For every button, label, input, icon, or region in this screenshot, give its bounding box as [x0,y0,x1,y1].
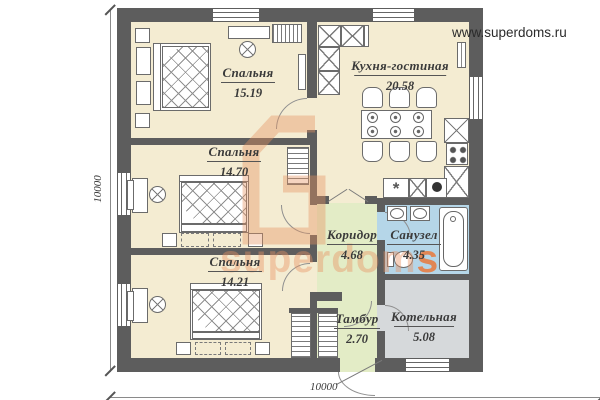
place-setting [367,126,378,137]
boiler-window [405,359,450,371]
room-label-bedroom-2: Спальня 14.70 [207,145,261,179]
dimension-line-left [110,10,111,372]
bed3-rug [195,342,221,355]
room-area: 15.19 [234,87,262,100]
room-area: 4.35 [403,249,425,262]
bed1-dresser [228,26,270,39]
room-name: Спальня [208,145,259,158]
room-label-vestibule: Тамбур 2.70 [334,312,380,346]
kitchen-cabinet [409,178,426,198]
room-name: Кухня-гостиная [351,59,449,72]
room-name: Санузел [390,228,437,241]
kitchen-cabinet [444,118,469,143]
room-name: Спальня [209,255,260,268]
site-url: www.superdoms.ru [452,25,567,40]
place-setting [390,126,401,137]
room-area: 2.70 [346,333,368,346]
bed1-nightstand-top [136,47,151,75]
bed2-nightstand [162,233,177,247]
bed1-corner-table [135,28,150,43]
bed1-wardrobe-icon [272,24,302,43]
room-area: 14.21 [221,276,249,289]
room-area: 20.58 [386,80,414,93]
bed2-door-gap [310,205,317,235]
wall-kitchen-bathroom [377,198,469,205]
radiator-icon [457,42,466,68]
chair-icon [416,141,437,162]
chair-icon [362,141,383,162]
place-setting [413,112,424,123]
bed3-rug [225,342,251,355]
sofa-seat-3 [318,47,340,71]
wall-right [469,8,483,372]
sofa-icon [318,25,341,47]
vestibule-door-gap [342,292,377,301]
room-name: Котельная [391,310,457,323]
radiator-icon [127,291,134,321]
sofa-seat-2 [341,25,364,47]
bed3-dresser [132,288,148,323]
ceiling-fan-icon [149,186,166,203]
room-name: Спальня [222,66,273,79]
bed3-closet-icon [291,313,311,358]
bed2-foot-bench [181,224,247,232]
bathroom-door-gap [377,212,385,240]
stove-icon [446,143,468,165]
room-area: 4.68 [341,249,363,262]
sink-basin [413,208,427,219]
bed1-headboard [154,44,161,110]
floor-plan: * Спальня 15.19 Кухня-гостиная [0,0,600,400]
dimension-bottom-value: 10000 [310,381,338,393]
room-label-corridor: Коридор 4.68 [327,228,377,262]
ceiling-fan-icon [149,296,166,313]
kitchen-cabinet [444,166,469,198]
bed2-rug [181,233,209,247]
entrance-door-arc [338,372,375,396]
bed2-dresser [132,178,148,213]
place-setting [390,112,401,123]
kitchen-right-window [470,76,482,120]
bed3-door-gap [310,262,317,292]
room-label-bedroom-3: Спальня 14.21 [208,255,262,289]
bed1-tv-stand [298,54,306,90]
sofa-seat-4 [318,71,340,95]
bed1-door-gap [307,98,317,130]
wall-bathroom-boiler [385,274,469,280]
bed1-nightstand-bottom [136,81,151,105]
room-label-bedroom-1: Спальня 15.19 [221,66,275,100]
room-name: Коридор [327,228,377,241]
room-area: 14.70 [220,166,248,179]
sofa-armrest [364,25,369,47]
bed1-corner-table-2 [135,113,150,128]
room-label-boiler: Котельная 5.08 [391,310,457,344]
room-label-bathroom: Санузел 4.35 [387,228,441,262]
bed2-rug [213,233,241,247]
dimension-tick [105,391,116,400]
radiator-icon [127,180,134,210]
ceiling-fan-icon [239,41,256,58]
wall-corridor-vestibule-stub [310,292,342,301]
washing-machine-drum [432,182,442,192]
sink-basin [390,208,404,219]
room-name: Тамбур [335,312,378,325]
room-label-kitchen: Кухня-гостиная 20.58 [351,59,449,93]
dimension-tick [597,391,600,400]
place-setting [367,112,378,123]
bed3-foot-bench [192,332,260,339]
place-setting [413,126,424,137]
bed3-nightstand [176,342,191,355]
dimension-left-value: 10000 [92,173,104,205]
wall-bedrooms-corridor [310,145,317,358]
bed2-wardrobe-icon [287,147,309,185]
chair-icon [389,141,410,162]
room-area: 5.08 [413,331,435,344]
dimension-line-bottom [110,397,600,398]
wall-top [117,8,483,22]
bedroom-1-window [212,9,260,21]
kitchen-sink-icon: * [383,178,409,198]
bathtub-drain [450,216,456,222]
kitchen-top-window [372,9,415,21]
bed2-nightstand [248,233,263,247]
bed3-nightstand [255,342,270,355]
